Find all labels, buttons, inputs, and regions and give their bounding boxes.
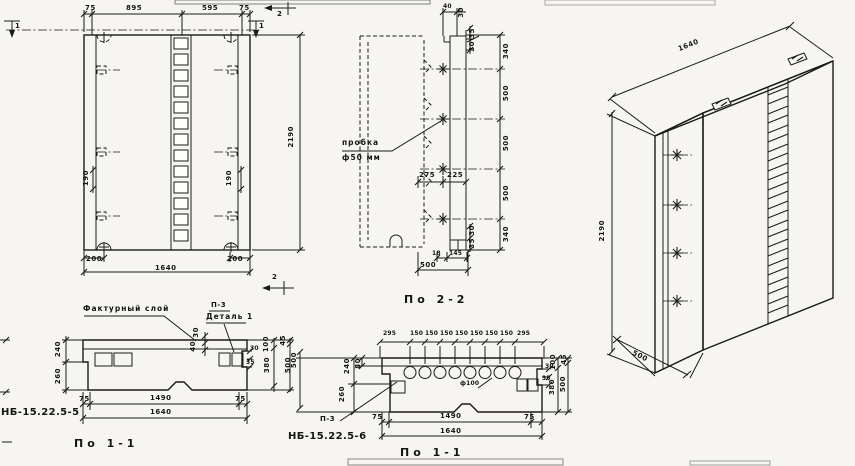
sec22-chain-500-3: 500	[503, 185, 510, 201]
sec11b-dim-500: 500	[560, 376, 567, 392]
section-1-1-mid-title: По 1-1	[400, 446, 464, 459]
sec11b-dim-80: 80	[355, 358, 362, 369]
sec11b-dim-1490: 1490	[440, 413, 461, 420]
sec11b-dim-150-2: 150	[425, 331, 438, 337]
iso-view-linework	[607, 22, 833, 378]
section-2-2-title: По 2-2	[404, 293, 468, 306]
sec11b-dim-260: 260	[339, 386, 346, 402]
sec22-dim-35-bottom: 35	[469, 238, 476, 249]
blueprint-sheet: 75 895 595 75 1 1 2 2 190 190 200 1640 2…	[0, 0, 855, 466]
sec11a-dim-45: 45	[280, 335, 287, 346]
drawing-linework	[0, 0, 855, 466]
section-1-1-left-title: По 1-1	[74, 437, 138, 450]
sec22-chain-500-2: 500	[503, 135, 510, 151]
cut-mark-1-left: 1	[15, 23, 20, 30]
sec22-dim-35-upper: 35	[469, 28, 476, 39]
sec11a-dim-35-step: 35	[246, 360, 255, 366]
sec11b-dim-100: 100	[550, 354, 557, 370]
sec11b-dim-150-5: 150	[470, 331, 483, 337]
sec11b-dim-150-3: 150	[440, 331, 453, 337]
front-dim-595: 595	[202, 5, 218, 12]
sec11b-dim-45: 45	[561, 354, 568, 365]
cut-mark-2-bottom: 2	[272, 274, 277, 281]
sec11a-dim-40-layer: 40	[190, 341, 197, 352]
sec22-dim-275: 275	[419, 172, 435, 179]
front-dim-75-right: 75	[239, 5, 250, 12]
front-dim-895: 895	[126, 5, 142, 12]
sec11b-dim-500-left: 500	[291, 352, 298, 368]
front-dim-2190: 2190	[288, 126, 295, 147]
iso-dim-2190: 2190	[599, 220, 606, 241]
sec22-dim-500: 500	[420, 262, 436, 269]
sec11b-p3-label: П-3	[320, 416, 335, 423]
sec11a-dim-380: 380	[264, 357, 271, 373]
sec11b-dim-150-7: 150	[500, 331, 513, 337]
plug-label-line1: пробка	[342, 139, 379, 147]
front-dim-75-left: 75	[85, 5, 96, 12]
sec11a-dim-75-left: 75	[79, 396, 90, 403]
front-dim-200-right: 200	[227, 256, 243, 263]
sec11b-dim-150-6: 150	[485, 331, 498, 337]
panel-mark-mid: НБ-15.22.5-6	[288, 431, 366, 442]
sec11a-dim-1490: 1490	[150, 395, 171, 402]
sec22-dim-30-upper: 30	[469, 41, 476, 52]
hole-diameter-label: ф100	[460, 381, 479, 387]
sec11a-dim-240: 240	[55, 341, 62, 357]
sec11b-dim-240: 240	[344, 358, 351, 374]
sec11a-p3-label: П-3	[211, 302, 226, 309]
front-view-linework	[4, 2, 305, 295]
sec11b-dim-380: 380	[549, 379, 556, 395]
front-dim-1640: 1640	[155, 265, 176, 272]
plug-label-line2: ф50 мм	[342, 154, 381, 162]
front-dim-190-left: 190	[83, 170, 90, 186]
sec22-chain-340-bottom: 340	[503, 226, 510, 242]
front-dim-200-left: 200	[86, 256, 102, 263]
sec11a-dim-100: 100	[263, 336, 270, 352]
sec22-chain-500-1: 500	[503, 85, 510, 101]
sec11a-dim-75-right: 75	[235, 396, 246, 403]
sec22-dim-40: 40	[443, 4, 452, 10]
sec11b-dim-295-left: 295	[383, 331, 396, 337]
sec22-dim-145: 145	[449, 251, 462, 257]
front-dim-190-right: 190	[226, 170, 233, 186]
cut-mark-2-top: 2	[277, 11, 282, 18]
sec11b-dim-1640: 1640	[440, 428, 461, 435]
sec11b-dim-75-right: 75	[524, 414, 535, 421]
sec11a-dim-30-layer: 30	[193, 327, 200, 338]
sec22-chain-340-top: 340	[503, 43, 510, 59]
sec11a-dim-30-step: 30	[250, 346, 259, 352]
panel-mark-left: НБ-15.22.5-5	[1, 407, 79, 418]
cut-mark-1-right: 1	[259, 23, 264, 30]
detail-1-label: Деталь 1	[206, 313, 253, 321]
sec22-dim-225: 225	[447, 172, 463, 179]
sec22-dim-30-top: 30	[458, 7, 465, 18]
sec22-dim-18: 18	[432, 251, 441, 257]
sec11a-dim-260: 260	[55, 368, 62, 384]
sec11b-dim-295-right: 295	[517, 331, 530, 337]
sec11b-dim-75-left: 75	[372, 414, 383, 421]
facing-layer-label: Фактурный слой	[83, 305, 169, 313]
sec22-dim-30-bottom: 30	[469, 225, 476, 236]
sec11b-dim-150-1: 150	[410, 331, 423, 337]
sec11b-dim-150-4: 150	[455, 331, 468, 337]
sec11a-dim-1640: 1640	[150, 409, 171, 416]
section-1-1-left-linework	[0, 311, 294, 442]
